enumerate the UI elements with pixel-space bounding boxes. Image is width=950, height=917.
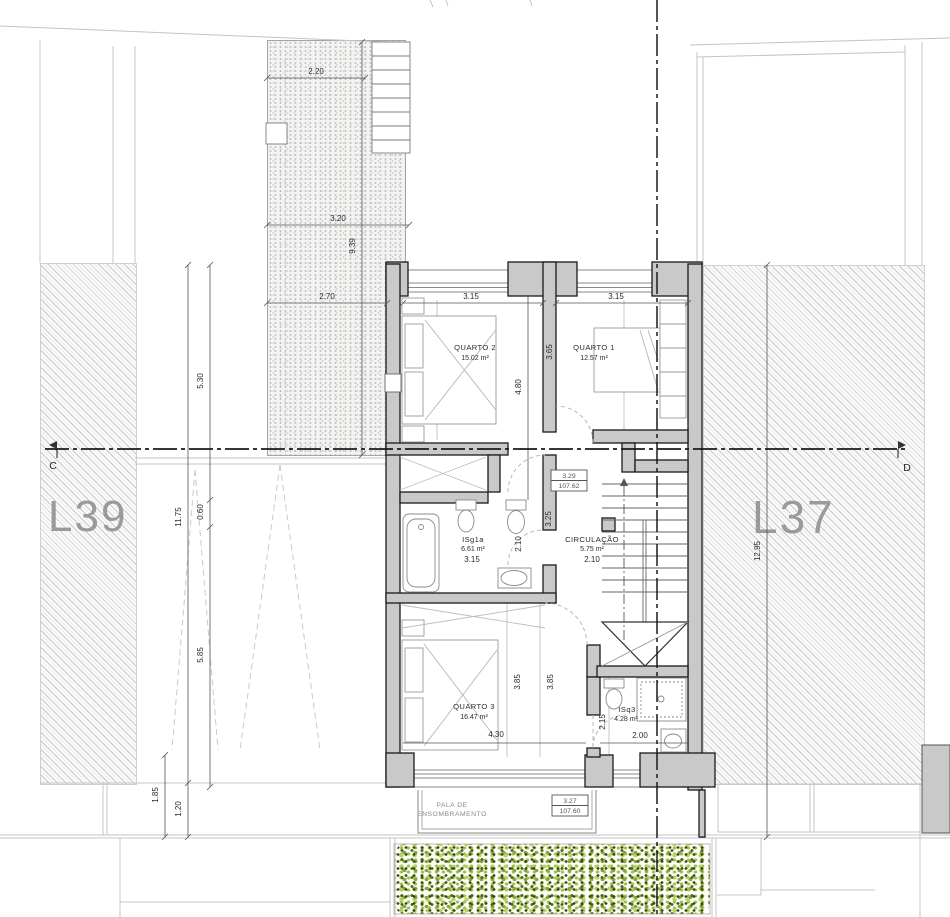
staircase xyxy=(602,478,688,666)
room-area-quarto1: 12.57 m² xyxy=(580,355,608,362)
room-label-quarto1: QUARTO 1 xyxy=(573,343,615,352)
dim-yard-upper: 5.30 xyxy=(196,373,205,389)
terrace-planter-box xyxy=(266,123,287,144)
room-area-circulacao: 5.75 m² xyxy=(580,546,604,553)
dim-quarto1-depth: 3.65 xyxy=(545,344,554,360)
dim-lot-right: 12.95 xyxy=(753,540,762,561)
canopy-label-line1: PALA DE xyxy=(436,802,467,809)
room-area-isq3: 4.28 m² xyxy=(614,716,638,723)
bidet xyxy=(458,510,474,532)
section-marker-c: C xyxy=(49,460,57,472)
plan-linework: 2.20 3.20 2.70 9.39 5.30 11.75 0.60 5.85… xyxy=(0,0,950,917)
dim-quarto2-depth: 4.80 xyxy=(514,379,523,395)
dim-hall-depth: 3.25 xyxy=(544,511,553,527)
dim-terrace-length: 9.39 xyxy=(348,238,357,254)
dim-yard-total: 11.75 xyxy=(174,507,183,527)
room-area-isg1a: 6.61 m² xyxy=(461,546,485,553)
door-arc-quarto3 xyxy=(545,603,587,645)
dim-yard-lower: 5.85 xyxy=(196,647,205,663)
bidet-tank xyxy=(456,500,476,510)
dim-terrace-top: 2.20 xyxy=(308,67,324,76)
dim-circ-width: 2.10 xyxy=(584,555,600,564)
dim-yard-bottom-b: 1.20 xyxy=(174,801,183,817)
dim-terrace-mid: 3.20 xyxy=(330,214,346,223)
room-label-isq3: ISq3 xyxy=(618,705,635,714)
dim-quarto2-width: 3.15 xyxy=(463,292,479,301)
toilet-tank xyxy=(506,500,526,510)
section-marker-d: D xyxy=(903,462,911,474)
toilet-tank-isq3 xyxy=(604,679,624,688)
room-area-quarto2: 15.02 m² xyxy=(461,355,489,362)
door-arc-quarto1 xyxy=(556,406,593,443)
dim-quarto3-depth-a: 3.85 xyxy=(513,674,522,690)
dim-terrace-low: 2.70 xyxy=(319,292,335,301)
toilet xyxy=(508,511,525,534)
door-arc-quarto2 xyxy=(508,455,545,492)
room-label-isg1a: ISg1a xyxy=(462,535,484,544)
dim-quarto1-width: 3.15 xyxy=(608,292,624,301)
dim-isg1a-depth: 2.10 xyxy=(514,536,523,552)
dim-yard-bottom-a: 1.85 xyxy=(151,787,160,803)
room-label-quarto3: QUARTO 3 xyxy=(453,702,495,711)
nightstand xyxy=(402,426,424,442)
site-dashed-lines xyxy=(172,60,320,750)
level-upper-height: 3.29 xyxy=(562,473,575,480)
level-lower-elevation: 107.60 xyxy=(560,808,581,815)
wardrobe-quarto1 xyxy=(660,300,686,418)
room-label-quarto2: QUARTO 2 xyxy=(454,343,496,352)
nightstand xyxy=(402,620,424,636)
level-lower-height: 3.27 xyxy=(563,798,576,805)
dim-isg1a-width: 3.15 xyxy=(464,555,480,564)
level-upper-elevation: 107.62 xyxy=(559,483,580,490)
site-boundary-lines xyxy=(0,0,950,917)
dim-quarto3-width: 4.30 xyxy=(488,730,504,739)
dim-quarto3-depth-b: 3.85 xyxy=(546,674,555,690)
sink-isq3 xyxy=(665,734,682,748)
west-window xyxy=(385,374,401,392)
exterior-stair xyxy=(372,42,410,153)
dim-yard-step: 0.60 xyxy=(196,504,205,520)
room-area-quarto3: 16.47 m² xyxy=(460,714,488,721)
canopy-label-line2: ENSOMBRAMENTO xyxy=(417,811,487,818)
room-label-circulacao: CIRCULAÇÃO xyxy=(565,535,619,544)
dim-isq3-width: 2.00 xyxy=(632,731,648,740)
floor-plan-canvas: L39 L37 xyxy=(0,0,950,917)
sink xyxy=(501,571,527,586)
dim-isq3-depth: 2.15 xyxy=(598,714,607,730)
